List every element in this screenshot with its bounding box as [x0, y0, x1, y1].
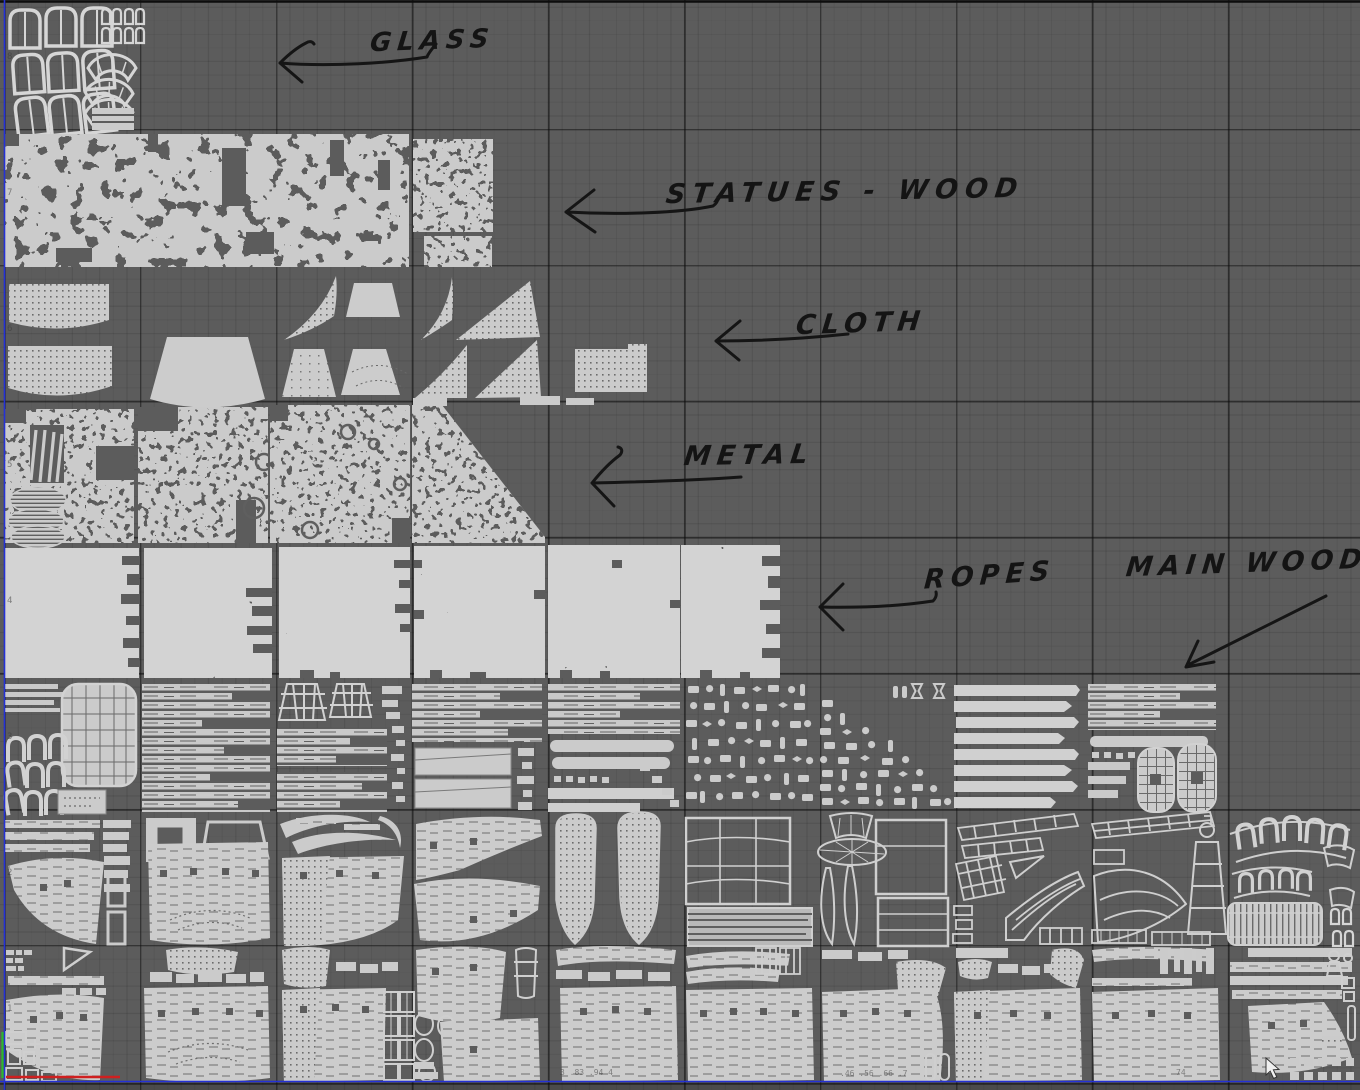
- ruler-left-tick: 6: [7, 324, 12, 334]
- uv-island-group-cloth[interactable]: [8, 276, 647, 408]
- ruler-bottom-tick: 74: [1176, 1068, 1186, 1077]
- ruler-left-tick: 8: [7, 52, 12, 62]
- arrow-ropes: [820, 584, 936, 630]
- uv-island-group-hull-panels-upper[interactable]: [4, 812, 1354, 946]
- arrow-main-wood: [1186, 596, 1326, 667]
- annotation-metal-label: METAL: [682, 439, 816, 472]
- uv-island-group-ropes[interactable]: [5, 545, 780, 678]
- ruler-left-tick: 2: [7, 868, 12, 878]
- uv-island-group-hull-panels-lower[interactable]: [6, 946, 1355, 1082]
- ruler-left-tick: 7: [7, 188, 12, 198]
- uv-islands-canvas: [0, 0, 1360, 1090]
- ruler-left-tick: 4: [7, 596, 12, 606]
- annotation-statues-wood-label: STATUES - WOOD: [664, 173, 1026, 210]
- uv-editor-viewport[interactable]: GLASS STATUES - WOOD CLOTH METAL ROPES M…: [0, 0, 1360, 1090]
- uv-island-group-glass[interactable]: [10, 8, 144, 137]
- ruler-left-tick: 5: [7, 460, 12, 470]
- annotation-glass-label: GLASS: [368, 24, 496, 58]
- ruler-bottom-tick: .46 .56 .66 .7: [840, 1069, 907, 1078]
- annotation-cloth-label: CLOTH: [794, 306, 927, 342]
- ruler-bottom-tick: 3 .83 .94 4: [560, 1068, 613, 1077]
- uv-island-group-statues-wood[interactable]: [5, 134, 493, 267]
- uv-island-group-wood-parts[interactable]: [4, 684, 1216, 816]
- ruler-left-tick: 3: [7, 732, 12, 742]
- ruler-left-tick: 1: [7, 1004, 12, 1014]
- uv-island-group-metal[interactable]: [4, 396, 594, 548]
